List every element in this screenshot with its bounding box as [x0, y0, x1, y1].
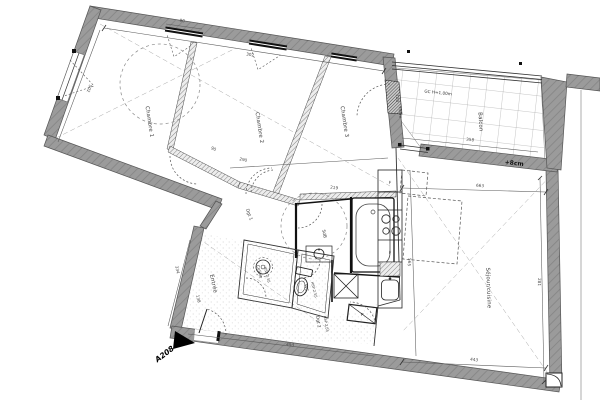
wall-neighbor-top — [566, 74, 600, 91]
unit-number: A208 — [152, 344, 175, 365]
room-label-sejour: Séjour/cuisine — [484, 267, 492, 308]
wall-right — [546, 168, 562, 386]
dim-219: 219 — [330, 185, 339, 191]
washing-machine — [334, 274, 358, 298]
dim-663: 663 — [476, 183, 485, 188]
dim-334: 334 — [174, 265, 181, 274]
kitchen-sink — [380, 262, 400, 300]
dim-120: 120 — [395, 94, 400, 102]
corner-post — [546, 373, 562, 387]
room-label-chambre3: Chambre 3 — [339, 106, 350, 138]
window-left-wall — [56, 49, 94, 102]
room-label-dgt1: Dgt 1 — [244, 208, 254, 221]
dim-502: 502 — [86, 84, 94, 94]
dim-565: 565 — [407, 258, 412, 267]
room-label-balcon: Balcon — [476, 112, 483, 132]
partitions — [167, 42, 396, 206]
wall-chambre1-sw — [44, 135, 222, 210]
dim-358: 358 — [466, 137, 475, 143]
dim-443: 443 — [470, 357, 479, 363]
floor-plan: 302 290 219 90 358 663 443 281 565 493 1… — [0, 0, 600, 400]
bathtub — [352, 198, 394, 272]
fridge-dashed — [400, 170, 428, 196]
balcony-level-note: +8cm — [504, 159, 524, 168]
partition-c2-c3 — [271, 56, 331, 198]
fridge-letter: F — [389, 180, 392, 185]
partition-c1-c2 — [167, 42, 197, 150]
balcony-tiles — [396, 68, 545, 162]
room-label-chambre2: Chambre 2 — [254, 112, 265, 144]
partition-c1-hall — [168, 146, 240, 188]
dim-90: 90 — [210, 145, 217, 152]
room-label-chambre1: Chambre 1 — [144, 106, 155, 138]
dim-281: 281 — [537, 278, 542, 286]
dim-302: 302 — [246, 51, 255, 57]
dim-290: 290 — [239, 156, 248, 163]
door-level-note: +6cm — [398, 106, 403, 119]
floor-plan-svg: 302 290 219 90 358 663 443 281 565 493 1… — [0, 0, 600, 400]
room-label-sdb: SdB — [320, 229, 327, 238]
